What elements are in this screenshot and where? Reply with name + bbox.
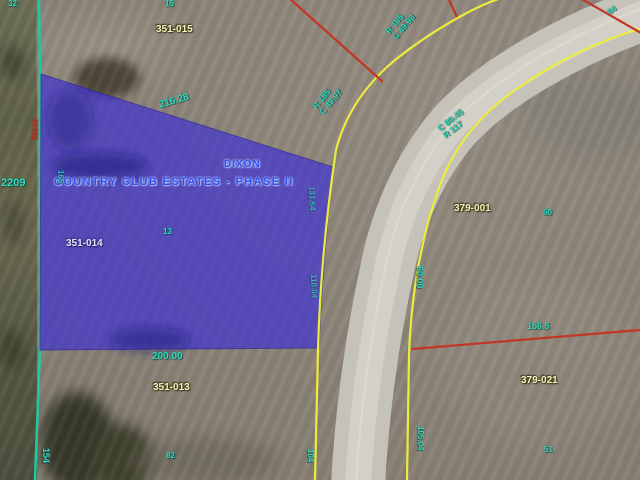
dim-road-east-lower: 105.04 [416,426,424,450]
parcel-label-379-021: 379-021 [521,376,558,386]
dim-road-east: 60.00 [415,266,424,289]
subdivision-name-line1: DIXON [224,160,261,170]
lot-number-51: 51 [544,446,553,454]
dim-west-lower: 154 [41,448,50,463]
dim-east-side-lower: 110.04 [309,274,318,298]
lot-number-82: 82 [166,452,175,460]
parcel-shade [110,328,190,352]
lot-number-50: 50 [543,209,552,217]
edge-fragment-top-left: 32 [8,0,17,8]
dim-southeast: 156.5 [527,322,550,331]
parcel-label-351-013: 351-013 [153,383,190,393]
lot-number-13: 13 [163,228,172,236]
dim-west-red: 40421 [30,118,38,140]
lot-line-red-southeast [412,330,640,349]
dim-bottom-edge: 200.00 [152,352,183,362]
dim-east-side-upper: 131.54 [307,186,316,211]
edge-fragment-top-center: 15 [165,0,174,8]
parcel-label-379-001: 379-001 [454,204,491,214]
lot-line-red-north [448,0,457,17]
subdivision-name-line2: COUNTRY CLUB ESTATES - PHASE II [54,177,294,188]
road-pavement-highlight [358,8,640,480]
dim-west-frontage: 2209 [1,178,25,189]
parcel-label-351-014: 351-014 [66,239,103,249]
survey-line-teal-west [35,0,40,480]
dim-west-side: 165 [56,170,64,183]
dim-road-west-lower: 104 [306,449,314,462]
parcel-map-canvas[interactable]: 351-015 351-014 351-013 379-001 379-021 … [0,0,640,480]
lot-line-red-northwest [289,0,383,82]
parcel-shade [48,90,92,150]
parcel-label-351-015: 351-015 [156,25,193,35]
